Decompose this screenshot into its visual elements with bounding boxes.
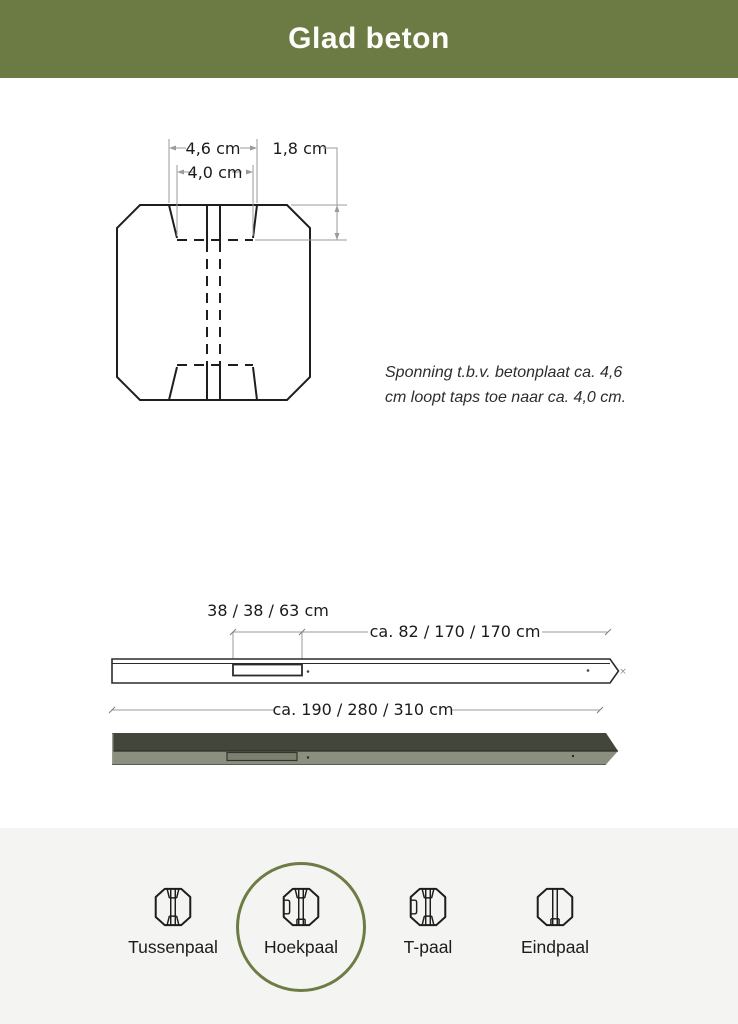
dim-upper-length-label: ca. 82 / 170 / 170 cm	[370, 622, 541, 641]
arrow-right-icon	[246, 170, 253, 175]
post-type-t-paal[interactable]: T-paal	[363, 886, 493, 958]
diagram-area: 4,6 cm 4,0 cm 1,8 cm Sponning t.b.v. bet…	[0, 78, 738, 828]
sponning-note: Sponning t.b.v. betonplaat ca. 4,6 cm lo…	[385, 361, 635, 411]
dim-width-bottom-label: 4,0 cm	[188, 163, 243, 182]
post-type-label: T-paal	[404, 937, 453, 958]
arrow-down-icon	[335, 233, 340, 240]
tussenpaal-icon	[153, 886, 193, 928]
sponning-bottom-slants	[169, 367, 257, 400]
post-type-eindpaal[interactable]: Eindpaal	[490, 886, 620, 958]
post-outline-side	[112, 659, 619, 683]
sponning-top-slants	[169, 205, 257, 238]
hole-dot	[587, 669, 590, 672]
groove-lines-solid	[207, 205, 220, 400]
hole-dot	[572, 755, 574, 757]
tip-mark: ×	[619, 667, 627, 677]
eindpaal-icon	[535, 886, 575, 928]
arrow-right-icon	[250, 146, 257, 151]
hole-dot	[307, 670, 310, 673]
concrete-post-top-face	[112, 733, 618, 751]
arrow-left-icon	[177, 170, 184, 175]
concrete-post-front-face	[112, 751, 618, 765]
dim-sponning-length-label: 38 / 38 / 63 cm	[207, 601, 329, 620]
post-type-label: Eindpaal	[521, 937, 589, 958]
arrow-up-icon	[335, 205, 340, 212]
dim-depth-label: 1,8 cm	[273, 139, 328, 158]
hole-dot	[307, 756, 309, 758]
sponning-note-line1: Sponning t.b.v. betonplaat ca. 4,6	[385, 361, 635, 386]
t-paal-icon	[408, 886, 448, 928]
side-view-diagram: 38 / 38 / 63 cm ca. 82 / 170 / 170 cm × …	[100, 590, 640, 775]
post-type-selector: Tussenpaal Hoekpaal T-paal Eindpaal	[0, 828, 738, 1024]
sponning-recess-rendered	[227, 753, 297, 761]
sponning-recess-outline	[233, 665, 302, 676]
post-outline	[117, 205, 310, 400]
sponning-note-line2: cm loopt taps toe naar ca. 4,0 cm.	[385, 386, 635, 411]
page-title: Glad beton	[288, 22, 450, 56]
post-type-tussenpaal[interactable]: Tussenpaal	[108, 886, 238, 958]
hoekpaal-icon	[281, 886, 321, 928]
post-type-label: Tussenpaal	[128, 937, 218, 958]
header-bar: Glad beton	[0, 0, 738, 78]
cross-section-diagram: 4,6 cm 4,0 cm 1,8 cm	[95, 125, 355, 415]
post-type-hoekpaal[interactable]: Hoekpaal	[236, 886, 366, 958]
dim-total-length-label: ca. 190 / 280 / 310 cm	[273, 700, 454, 719]
groove-lines-hidden	[207, 242, 220, 363]
arrow-left-icon	[169, 146, 176, 151]
dim-18-lines	[255, 148, 347, 240]
dim-width-top-label: 4,6 cm	[186, 139, 241, 158]
post-type-label: Hoekpaal	[264, 937, 338, 958]
